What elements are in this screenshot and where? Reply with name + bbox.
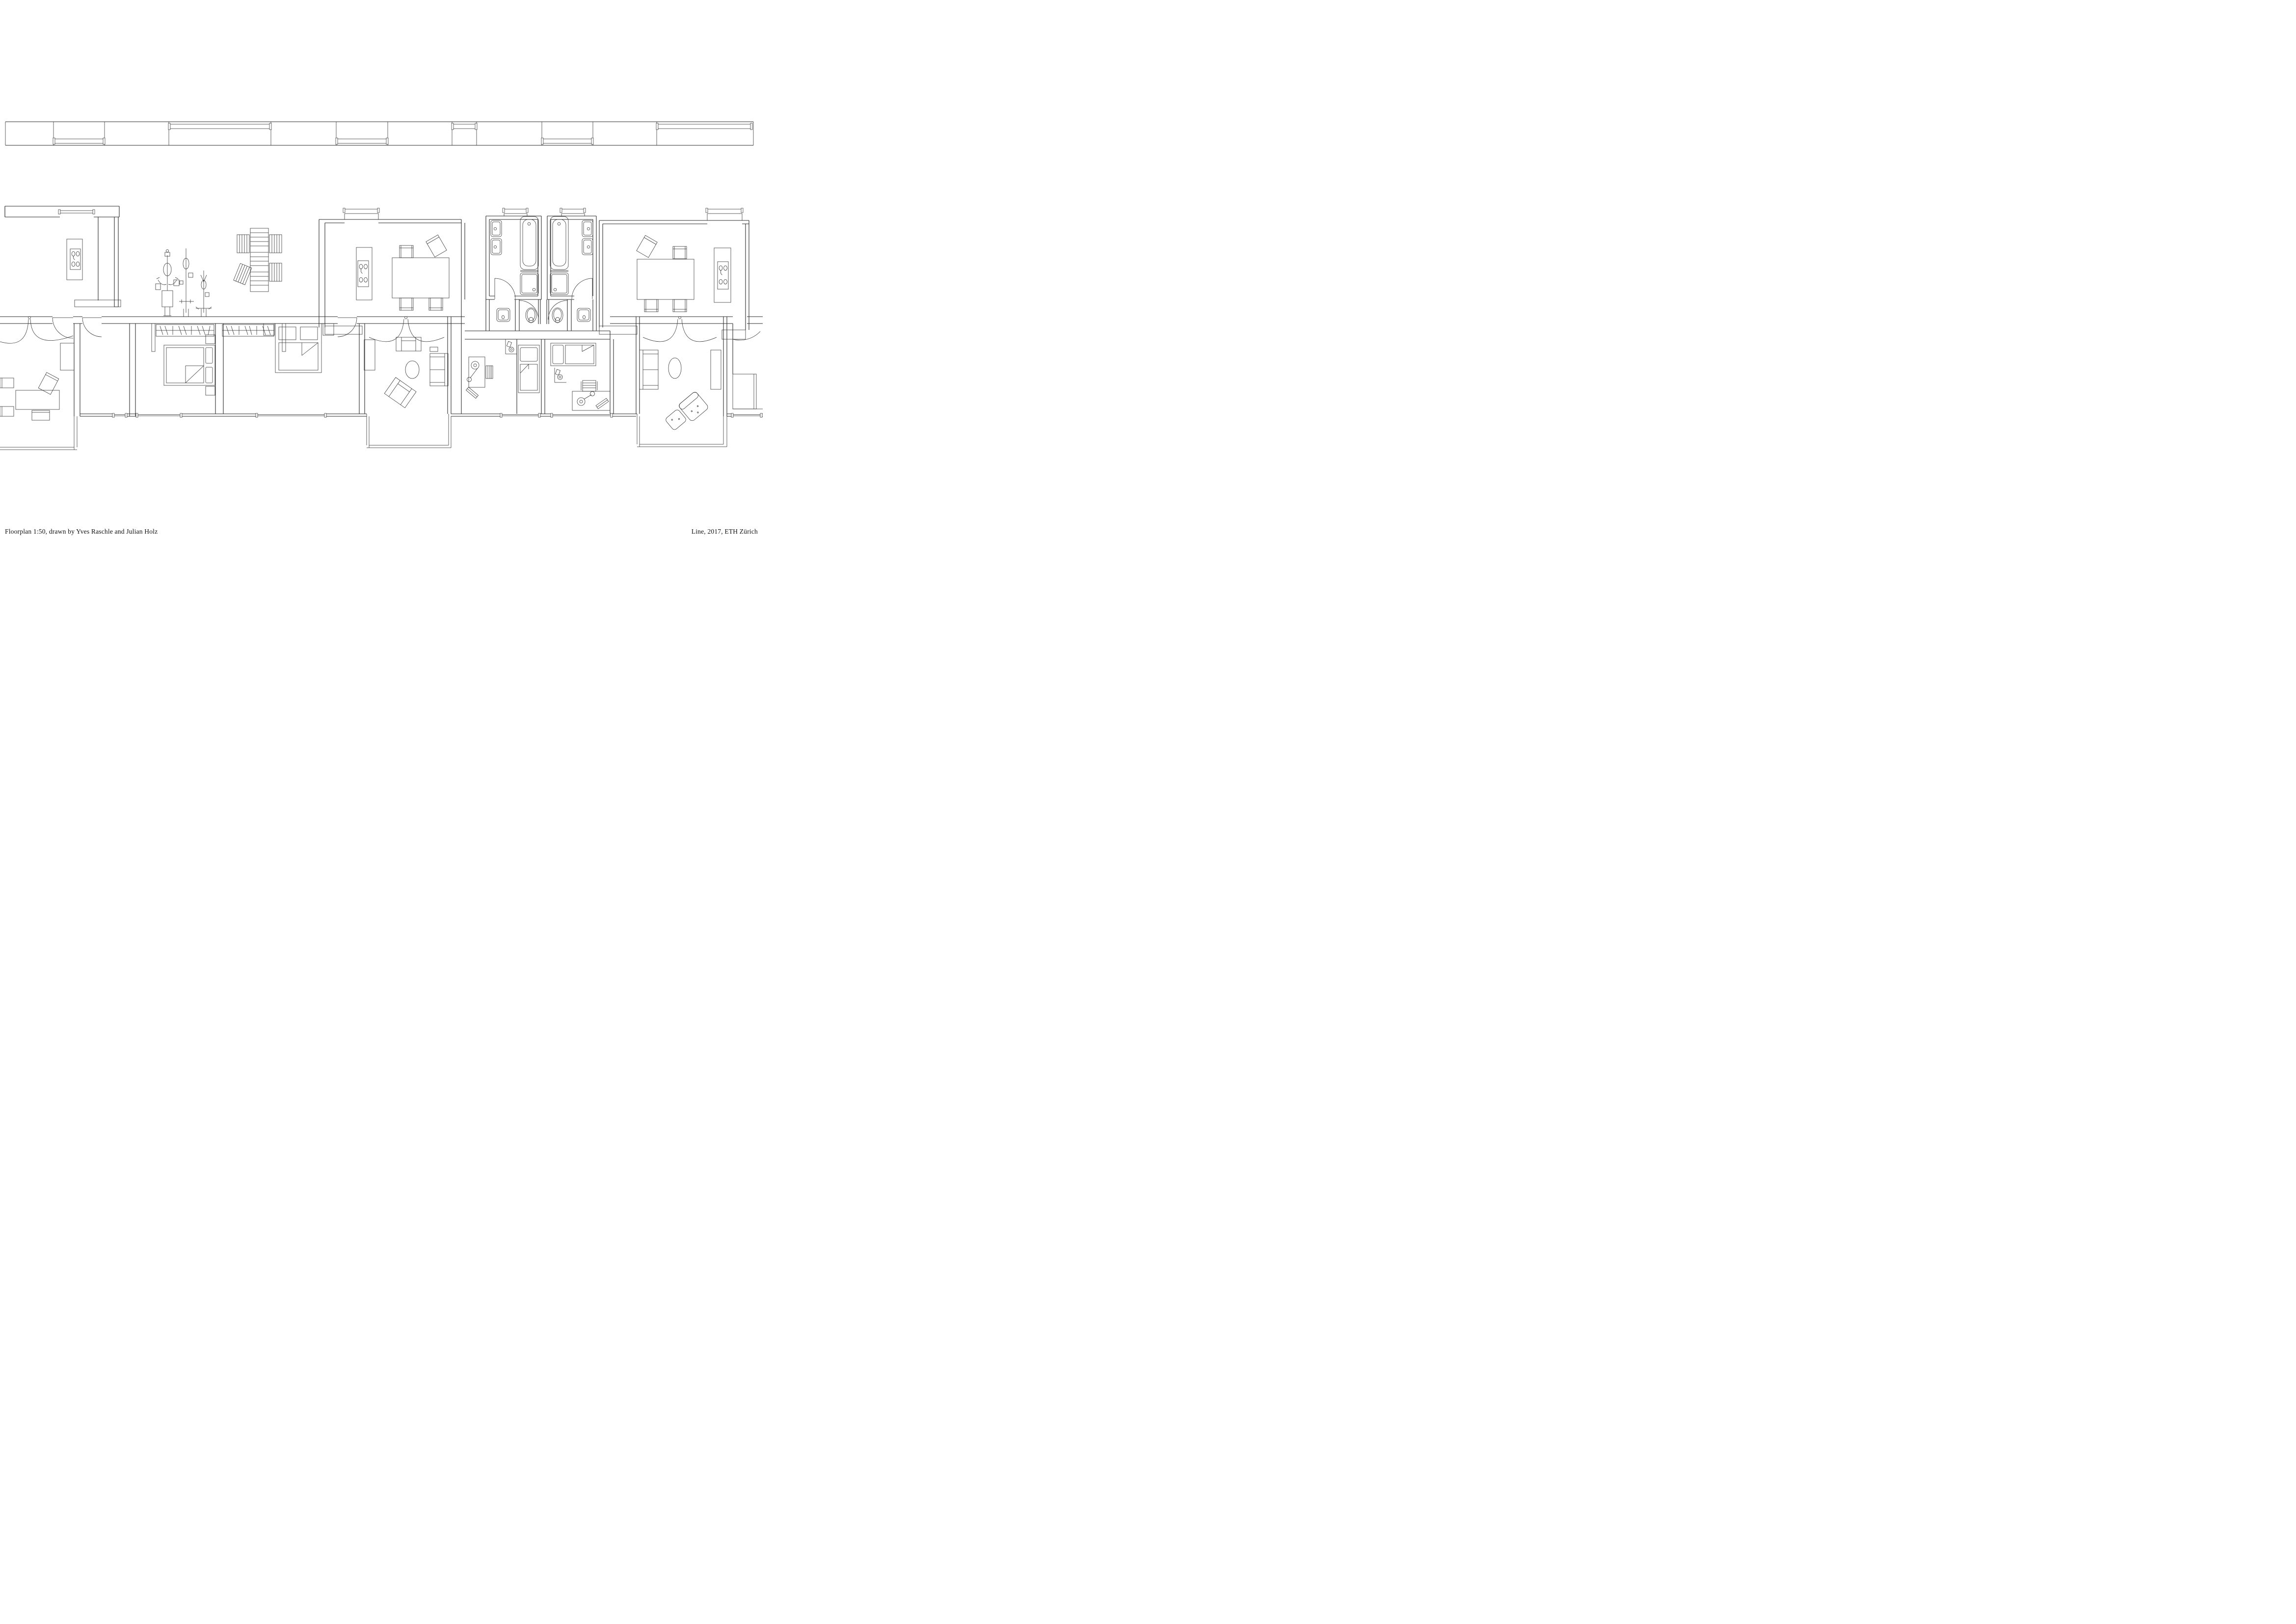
double-bed-icon [264,324,334,373]
cabinet-icon [711,350,721,389]
roof-strip [5,122,753,145]
wardrobe-icon [222,325,274,336]
floor-lamp-icon [196,271,212,317]
sink-icon [582,220,593,237]
sofa-icon [430,353,448,386]
chair-icon [581,380,597,391]
cooktop-icon [356,247,372,300]
caption-project: Line, 2017, ETH Zürich [692,528,758,536]
desk-icon [572,391,610,410]
chair-icon [400,245,413,258]
wall-lamp-icon [555,368,566,382]
chair-icon [0,406,14,416]
floor-lamp-icon [156,249,179,316]
cooktop-icon [67,239,82,280]
door-swing-icon [53,318,73,338]
double-bed-icon [164,335,215,395]
terrace [152,228,286,352]
lower-walls [0,317,763,450]
wall-lamp-icon [506,339,517,354]
bathrooms [491,217,593,323]
door-swing-icon [338,318,357,337]
window-icon [503,208,528,216]
chair-icon [269,263,282,281]
chair-icon [426,235,447,257]
cooktop-icon [714,248,731,302]
door-swing-icon [82,318,102,337]
toilet-icon [552,308,563,323]
shower-icon [520,273,538,295]
door-swing-icon [548,300,567,320]
floor-lamp-icon [179,248,194,317]
chair-icon [596,398,609,408]
wc-sink-icon [497,308,510,322]
desk-lamp-icon [577,392,595,406]
chair-icon [32,410,50,420]
lounge-chair-icon [678,391,709,422]
chair-icon [644,299,658,312]
window-icon [706,208,743,220]
right-apartment [637,235,756,431]
chair-icon [429,298,443,310]
dining-table-icon [637,259,694,299]
balcony-bay [0,414,727,450]
armchair-icon [384,378,416,408]
chair-icon [466,387,478,399]
strip-window-icon [168,123,752,130]
toilet-icon [526,308,536,323]
middle-rooms [466,339,610,410]
chair-icon [400,298,413,310]
middle-apartment [164,235,449,407]
caption-scale-authors: Floorplan 1:50, drawn by Yves Raschle an… [5,528,158,536]
window-icon [58,210,95,214]
chair-icon [637,235,657,257]
sink-icon [491,220,502,237]
curtain-icon [369,317,444,342]
sink-icon [491,239,502,255]
left-apartment [0,239,82,420]
chair-icon [486,366,493,379]
upper-walls [5,206,749,414]
bathtub-icon [520,217,538,270]
window-icon [343,208,379,219]
sink-icon [582,239,593,255]
window-icon [560,208,586,216]
curtain-icon [643,317,717,342]
side-table-icon [430,347,438,352]
strip-window-icon [53,138,593,144]
wc-sink-icon [577,308,590,322]
sofa-icon [640,350,658,389]
door-swing-icon [572,278,592,299]
chair-icon [673,246,687,259]
chair-icon [673,299,687,312]
chair-icon [237,235,249,253]
floorplan-drawing [0,0,763,540]
coffee-table-icon [668,358,681,379]
coffee-table-icon [405,361,419,379]
single-bed-icon [551,343,596,366]
chair-icon [38,373,59,395]
wardrobe-icon [156,325,214,336]
chair-icon [0,378,14,388]
shower-icon [550,273,568,295]
cabinet-icon [364,340,375,370]
chair-icon [269,235,282,253]
workbench-icon [152,324,286,352]
bed-icon [733,374,756,409]
bathtub-icon [550,217,568,270]
door-swing-icon [733,324,760,340]
desk-icon [467,357,485,387]
curtain-icon [0,317,73,344]
chair-icon [234,263,252,285]
sideboard-icon [60,343,74,370]
single-bed-icon [518,345,539,393]
floorplan-sheet: Floorplan 1:50, drawn by Yves Raschle an… [0,0,763,540]
dining-table-icon [16,390,59,409]
dining-table-icon [392,258,449,298]
outdoor-table-icon [250,228,268,292]
door-swing-icon [495,278,515,299]
